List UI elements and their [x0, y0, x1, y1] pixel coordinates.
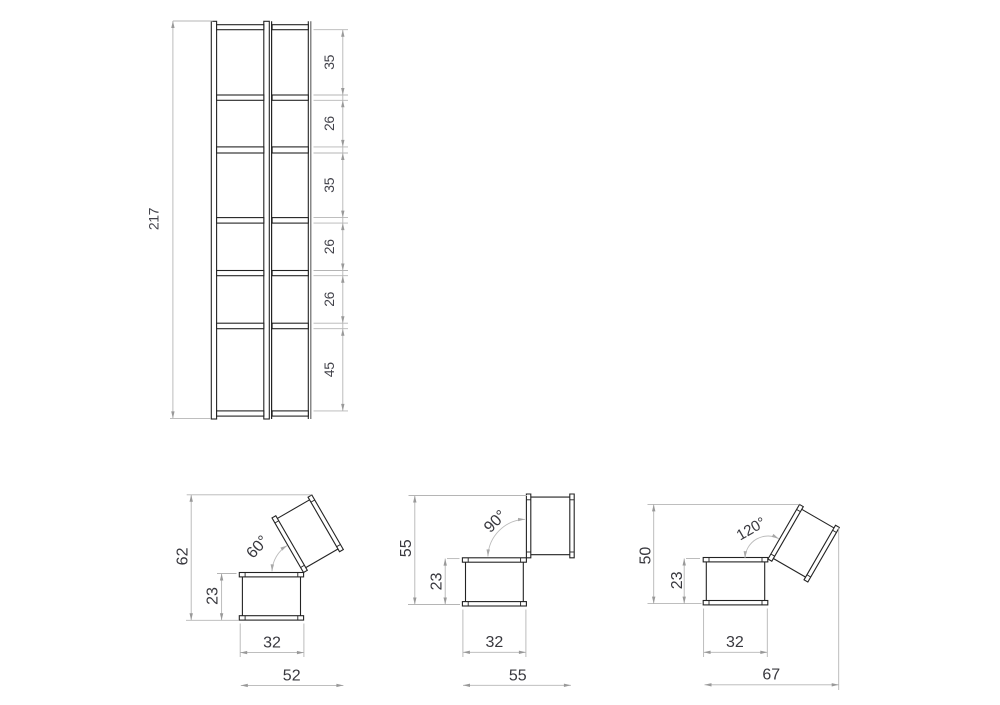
svg-text:67: 67: [762, 666, 780, 683]
svg-text:32: 32: [726, 634, 744, 651]
svg-text:26: 26: [321, 239, 337, 254]
svg-text:52: 52: [283, 668, 301, 685]
svg-text:55: 55: [398, 539, 415, 557]
svg-text:45: 45: [321, 362, 337, 377]
svg-text:217: 217: [146, 207, 162, 230]
svg-text:55: 55: [509, 668, 527, 685]
svg-text:26: 26: [321, 291, 337, 306]
svg-text:23: 23: [205, 587, 222, 605]
svg-text:26: 26: [321, 116, 337, 131]
svg-text:23: 23: [428, 573, 445, 591]
svg-text:35: 35: [321, 54, 337, 69]
svg-text:62: 62: [175, 547, 192, 565]
svg-text:35: 35: [321, 177, 337, 192]
svg-text:23: 23: [669, 571, 686, 589]
svg-text:32: 32: [486, 634, 504, 651]
svg-text:32: 32: [263, 634, 281, 651]
svg-text:50: 50: [638, 547, 655, 565]
